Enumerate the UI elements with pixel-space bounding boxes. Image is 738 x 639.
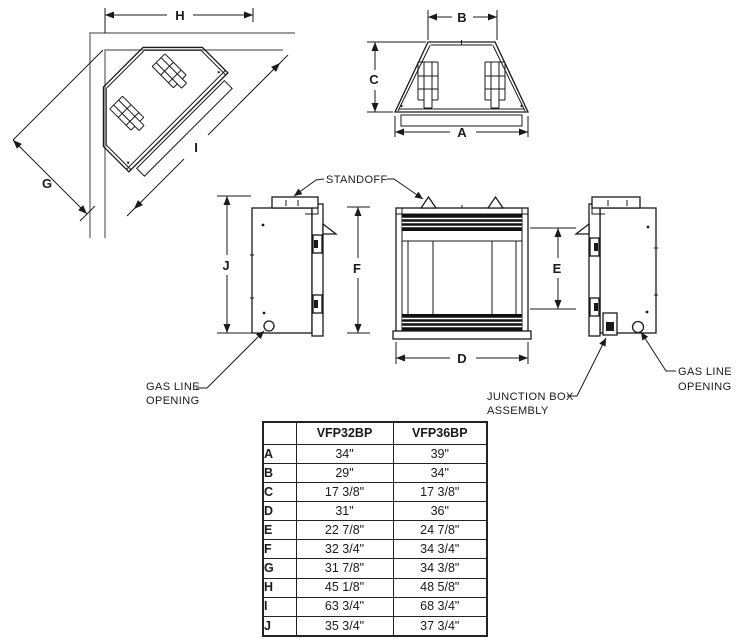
table-row: D31"36": [263, 502, 487, 521]
corner-view: H G I: [13, 8, 295, 238]
dim-value-vfp32bp-cell: 22 7/8": [296, 521, 393, 540]
gas-line-opening-right-hole: [633, 322, 644, 333]
dim-label-e: E: [553, 261, 562, 276]
dim-label-f: F: [353, 261, 361, 276]
table-row: E22 7/8"24 7/8": [263, 521, 487, 540]
dim-value-vfp32bp-cell: 29": [296, 464, 393, 483]
dim-label-i: I: [194, 140, 198, 155]
dim-value-vfp36bp-cell: 34": [393, 464, 487, 483]
dim-f: F: [347, 207, 370, 333]
table-row: B29"34": [263, 464, 487, 483]
gas-line-left-line1: GAS LINE: [146, 381, 200, 393]
top-view: B C A: [367, 10, 528, 140]
dim-value-vfp36bp-cell: 37 3/4": [393, 616, 487, 636]
dim-letter-cell: H: [263, 578, 296, 597]
junction-box-line1: JUNCTION BOX: [487, 391, 574, 403]
table-row: J35 3/4"37 3/4": [263, 616, 487, 636]
table-row: F32 3/4"34 3/4": [263, 540, 487, 559]
dim-value-vfp36bp-cell: 17 3/8": [393, 483, 487, 502]
dim-label-b: B: [457, 10, 466, 25]
dim-value-vfp36bp-cell: 68 3/4": [393, 597, 487, 616]
corner-fireplace-unit: [74, 18, 238, 182]
junction-box-line2: ASSEMBLY: [487, 405, 549, 417]
dim-letter-cell: A: [263, 445, 296, 464]
dim-letter-cell: G: [263, 559, 296, 578]
table-header-vfp32bp: VFP32BP: [296, 422, 393, 445]
gas-line-right-line1: GAS LINE: [678, 366, 732, 378]
gas-line-right-line2: OPENING: [678, 381, 732, 393]
dim-c: C: [367, 42, 426, 112]
dim-value-vfp32bp-cell: 31": [296, 502, 393, 521]
dim-value-vfp36bp-cell: 36": [393, 502, 487, 521]
table-header-empty: [263, 422, 296, 445]
dim-letter-cell: F: [263, 540, 296, 559]
gas-line-left-line2: OPENING: [146, 395, 200, 407]
label-gas-line-right: GAS LINE OPENING: [641, 332, 732, 393]
dim-letter-cell: B: [263, 464, 296, 483]
dimensions-table-body: A34"39"B29"34"C17 3/8"17 3/8"D31"36"E22 …: [263, 445, 487, 637]
table-row: G31 7/8"34 3/8": [263, 559, 487, 578]
dim-a: A: [395, 116, 528, 140]
dim-label-g: G: [42, 176, 52, 191]
dim-letter-cell: J: [263, 616, 296, 636]
standoff-triangle-right: [488, 197, 503, 208]
dim-value-vfp32bp-cell: 31 7/8": [296, 559, 393, 578]
dim-value-vfp36bp-cell: 39": [393, 445, 487, 464]
dim-value-vfp32bp-cell: 63 3/4": [296, 597, 393, 616]
front-view: F D E STANDOFF: [294, 174, 576, 366]
dim-value-vfp36bp-cell: 34 3/4": [393, 540, 487, 559]
table-row: A34"39": [263, 445, 487, 464]
dim-label-d: D: [457, 351, 466, 366]
dim-letter-cell: I: [263, 597, 296, 616]
table-header-vfp36bp: VFP36BP: [393, 422, 487, 445]
dim-letter-cell: D: [263, 502, 296, 521]
table-row: H45 1/8"48 5/8": [263, 578, 487, 597]
dim-d: D: [396, 342, 528, 366]
standoff-label-text: STANDOFF: [326, 174, 388, 186]
dim-b: B: [428, 10, 497, 40]
dim-letter-cell: C: [263, 483, 296, 502]
label-junction-box: JUNCTION BOX ASSEMBLY: [487, 338, 606, 417]
dim-value-vfp36bp-cell: 24 7/8": [393, 521, 487, 540]
dim-label-a: A: [457, 125, 467, 140]
dim-value-vfp32bp-cell: 45 1/8": [296, 578, 393, 597]
dim-label-c: C: [369, 72, 379, 87]
dim-letter-cell: E: [263, 521, 296, 540]
corner-walls: [90, 33, 295, 238]
label-standoff: STANDOFF: [294, 174, 423, 199]
dim-e: E: [530, 228, 576, 309]
table-row: C17 3/8"17 3/8": [263, 483, 487, 502]
dim-label-j: J: [222, 258, 229, 273]
dim-j: J: [217, 196, 253, 333]
table-row: I63 3/4"68 3/4": [263, 597, 487, 616]
dim-value-vfp32bp-cell: 32 3/4": [296, 540, 393, 559]
dim-h: H: [105, 8, 253, 33]
dim-value-vfp32bp-cell: 35 3/4": [296, 616, 393, 636]
dim-value-vfp32bp-cell: 34": [296, 445, 393, 464]
dim-i: I: [127, 55, 288, 216]
dim-value-vfp36bp-cell: 48 5/8": [393, 578, 487, 597]
standoff-triangle-left: [421, 197, 436, 208]
table-header-row: VFP32BP VFP36BP: [263, 422, 487, 445]
fireplace-dimension-diagram-page: H G I: [0, 0, 738, 639]
dim-label-h: H: [175, 8, 184, 23]
label-gas-line-left: GAS LINE OPENING: [146, 331, 264, 407]
gas-line-opening-left-hole: [264, 321, 274, 331]
dim-value-vfp36bp-cell: 34 3/8": [393, 559, 487, 578]
dimensions-table: VFP32BP VFP36BP A34"39"B29"34"C17 3/8"17…: [262, 421, 486, 637]
left-side-view: J GAS LINE OPENING: [146, 196, 336, 407]
dim-value-vfp32bp-cell: 17 3/8": [296, 483, 393, 502]
